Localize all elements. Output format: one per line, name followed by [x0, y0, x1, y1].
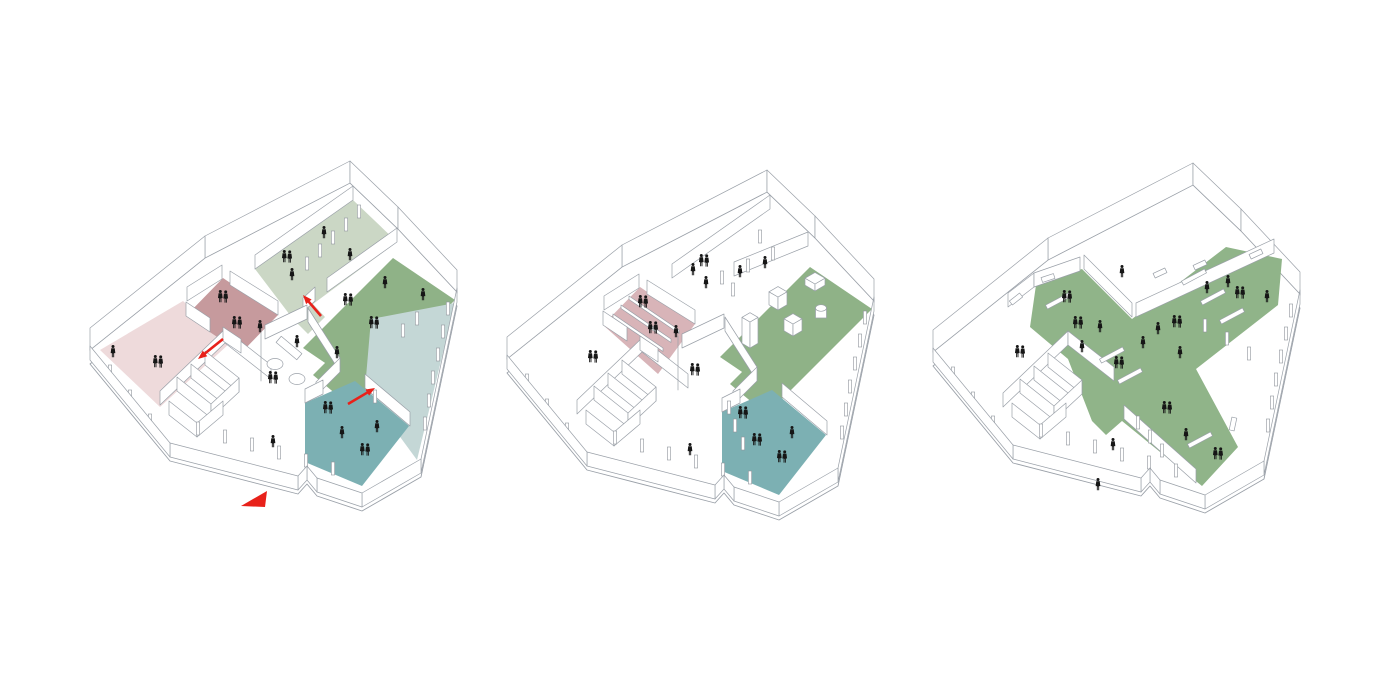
- axonometric-diagram-program-level: [507, 170, 874, 520]
- diagram-canvas: [0, 0, 1400, 700]
- axonometric-diagram-entry-level: [90, 161, 457, 511]
- round-table: [267, 359, 283, 370]
- axonometric-diagram-circulation-cross: [933, 163, 1300, 513]
- round-table: [289, 374, 305, 385]
- entrance-marker: [241, 491, 267, 507]
- axonometric-diagrams-svg: [0, 0, 1400, 700]
